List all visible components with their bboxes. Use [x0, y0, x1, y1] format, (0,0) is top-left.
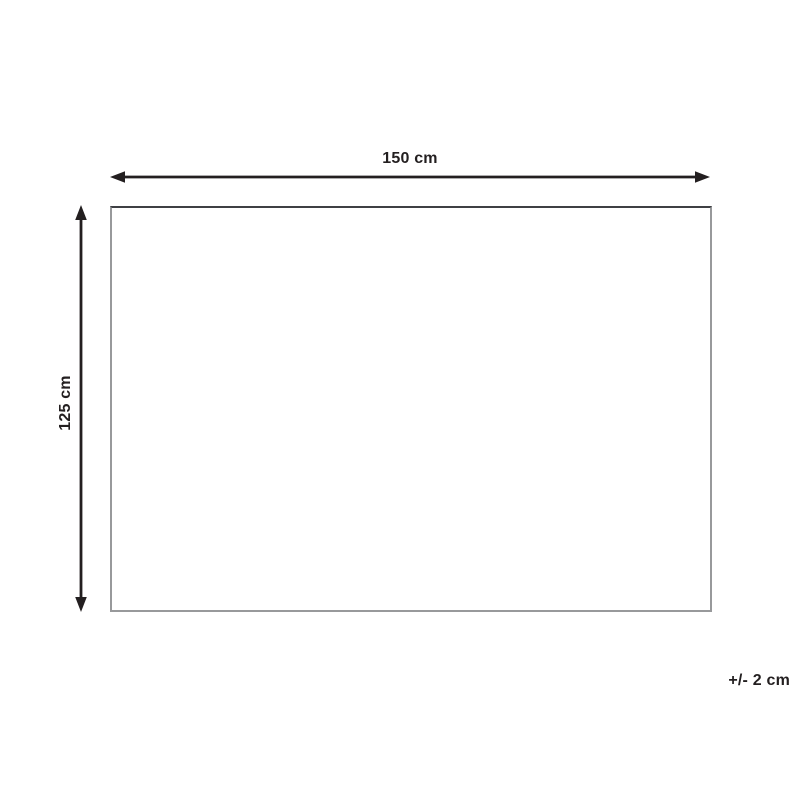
height-dimension-label: 125 cm: [57, 103, 75, 703]
width-dimension-label: 150 cm: [110, 150, 710, 168]
dimension-diagram: 150 cm 125 cm +/- 2 cm: [0, 0, 800, 800]
tolerance-label: +/- 2 cm: [728, 672, 790, 690]
product-outline-rect: [110, 206, 712, 612]
vertical-double-arrow-icon: [75, 205, 87, 612]
horizontal-double-arrow-icon: [110, 171, 710, 183]
